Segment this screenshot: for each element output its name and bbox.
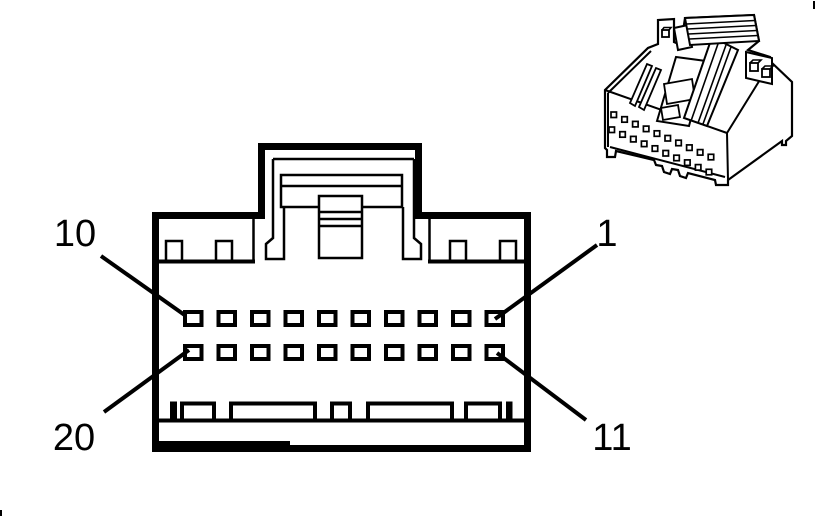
iso-lug-1	[750, 63, 758, 71]
iso-terminal-hole	[652, 146, 658, 152]
connector-front-view	[152, 147, 528, 449]
diagram-canvas: 10 1 20 11	[0, 0, 832, 518]
callout-label-pin11: 11	[592, 417, 631, 459]
pin-cavity	[252, 312, 269, 325]
iso-terminal-hole	[620, 132, 626, 138]
callout-label-pin20: 20	[53, 417, 95, 459]
lower-rail	[156, 404, 527, 421]
iso-terminal-hole	[695, 165, 701, 171]
pin-cavity	[386, 312, 403, 325]
rail-profile	[172, 404, 511, 421]
callout-label-pin10: 10	[54, 213, 96, 255]
iso-terminal-hole	[708, 154, 714, 160]
leader-line-pin1	[495, 245, 597, 319]
pin-cavity	[453, 346, 470, 359]
iso-terminal-hole	[674, 155, 680, 161]
iso-terminal-hole	[611, 112, 617, 118]
callout-label-pin1: 1	[596, 213, 617, 255]
iso-right-tab	[746, 52, 773, 84]
iso-terminal-hole	[622, 117, 628, 123]
pin-cavity	[219, 346, 236, 359]
iso-lug-2	[762, 69, 770, 77]
iso-terminal-hole	[687, 145, 693, 151]
housing-bottom-step	[152, 441, 290, 447]
pin-cavity	[353, 346, 370, 359]
pin-cavity	[420, 312, 437, 325]
iso-terminal-hole	[706, 169, 712, 175]
connector-iso-view	[605, 15, 792, 185]
pin-cavity	[286, 312, 303, 325]
iso-terminal-hole	[676, 140, 682, 146]
iso-terminal-hole	[609, 127, 615, 133]
callout-pin10: 10	[54, 213, 186, 316]
iso-terminal-hole	[697, 150, 703, 156]
iso-terminal-hole	[685, 160, 691, 166]
iso-terminal-hole	[631, 136, 637, 142]
pin-cavity	[252, 346, 269, 359]
pin-cavity	[420, 346, 437, 359]
iso-terminal-hole	[665, 136, 671, 142]
callout-pin11: 11	[497, 353, 632, 459]
iso-terminal-hole	[633, 121, 639, 127]
pin-cavity	[219, 312, 236, 325]
front-pin-grid	[185, 312, 503, 359]
pin-cavity	[353, 312, 370, 325]
pin-cavity	[319, 312, 336, 325]
pin-cavity	[319, 346, 336, 359]
pin-cavity	[386, 346, 403, 359]
pin-cavity	[453, 312, 470, 325]
pin-cavity	[185, 312, 202, 325]
iso-terminal-hole	[643, 126, 649, 132]
latch-detail	[266, 159, 421, 259]
leader-line-pin10	[101, 256, 186, 316]
callout-pin1: 1	[495, 213, 618, 319]
iso-terminal-hole	[663, 151, 669, 157]
iso-terminal-hole	[654, 131, 660, 137]
pin-cavity	[286, 346, 303, 359]
iso-terminal-hole	[641, 141, 647, 147]
connector-diagram-page: 10 1 20 11	[0, 0, 832, 518]
